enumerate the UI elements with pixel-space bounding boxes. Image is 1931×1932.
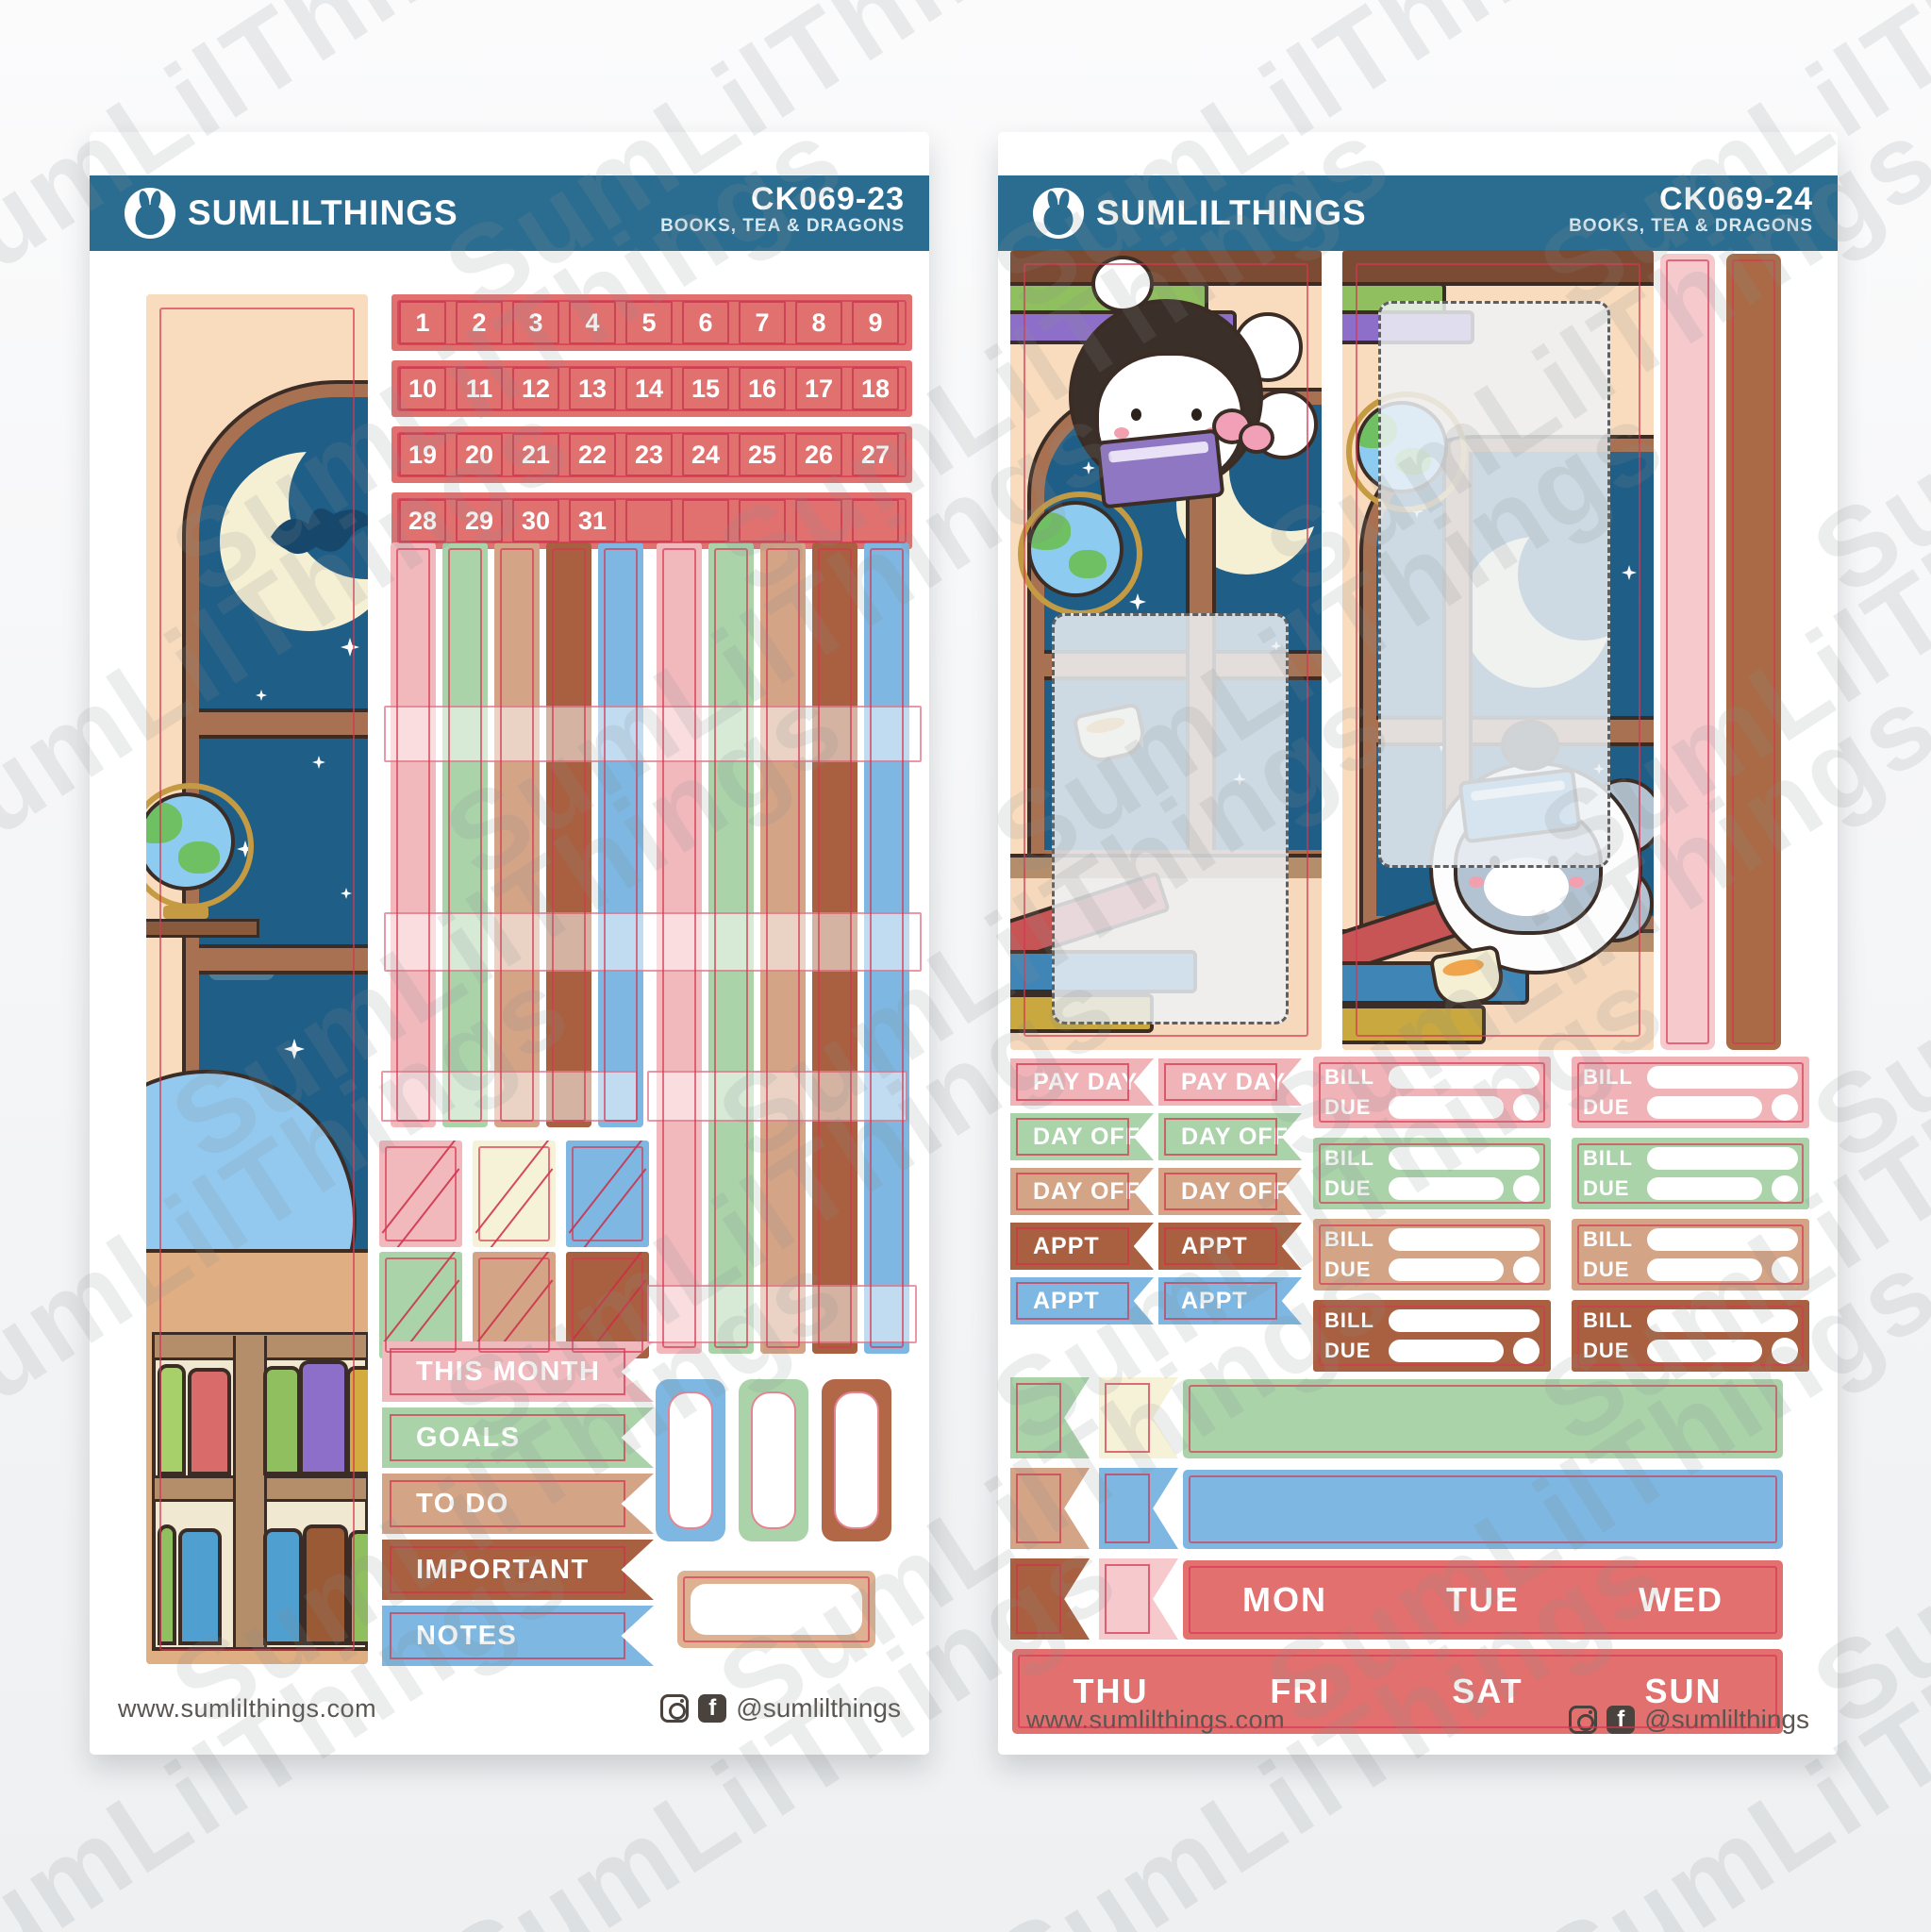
- bill-label: BILL: [1583, 1308, 1638, 1333]
- dragon-silhouette-icon: [258, 491, 368, 567]
- translucent-overlay-strip: [381, 1071, 638, 1122]
- banner-label: IMPORTANT: [416, 1555, 590, 1585]
- globe-shelf: [146, 919, 259, 938]
- character-eye: [1191, 408, 1202, 421]
- checkbox-circle: [1513, 1338, 1540, 1364]
- character-blush: [1114, 427, 1129, 439]
- star-icon: [341, 888, 352, 899]
- book-spine: [178, 1528, 222, 1645]
- star-icon: [1082, 461, 1095, 475]
- flag-label: APPT: [1033, 1233, 1100, 1259]
- vertical-box-rust: [822, 1379, 891, 1541]
- bill-write-in: [1389, 1309, 1540, 1332]
- date-strip-row-1: 1 2 3 4 5 6 7 8 9: [391, 294, 912, 351]
- checkbox-circle: [1513, 1175, 1540, 1202]
- date-sticker: 31: [569, 499, 616, 542]
- stacked-book: [1342, 1005, 1486, 1044]
- due-write-in: [1389, 1340, 1504, 1362]
- date-sticker: 25: [739, 433, 786, 476]
- facebook-icon: [1606, 1706, 1635, 1734]
- flag-label: DAY OFF: [1181, 1124, 1289, 1150]
- translucent-overlay-strip: [384, 912, 922, 972]
- flag-day-off: DAY OFF: [1158, 1113, 1302, 1160]
- globe-continent: [1027, 512, 1071, 550]
- date-sticker: 12: [512, 367, 559, 410]
- pink-bow: [1239, 422, 1274, 454]
- bookshelf: [152, 1332, 368, 1651]
- weekday-label: MON: [1242, 1580, 1327, 1620]
- corner-sticker-cream: [473, 1141, 556, 1247]
- date-sticker: 18: [852, 367, 899, 410]
- brand-name: SUMLILTHINGS: [1096, 193, 1367, 233]
- globe-continent: [146, 802, 182, 843]
- label-box-tan: [677, 1571, 875, 1648]
- date-sticker: 21: [512, 433, 559, 476]
- book-spine: [346, 1366, 368, 1475]
- bill-label: BILL: [1583, 1227, 1638, 1252]
- bill-due-sticker-brown: BILL DUE: [1572, 1300, 1809, 1372]
- flag-label: DAY OFF: [1033, 1124, 1140, 1150]
- date-sticker: 17: [795, 367, 842, 410]
- due-label: DUE: [1324, 1339, 1379, 1363]
- date-sticker: 28: [399, 499, 446, 542]
- bill-label: BILL: [1583, 1146, 1638, 1171]
- star-icon: [1129, 593, 1146, 610]
- bill-due-sticker-brown: BILL DUE: [1313, 1300, 1551, 1372]
- window-scene-sticker: [146, 294, 368, 1664]
- sticker-sheet-left: SUMLILTHINGS CK069-23 BOOKS, TEA & DRAGO…: [90, 132, 929, 1755]
- purple-book: [1096, 428, 1225, 508]
- flag-label: DAY OFF: [1181, 1178, 1289, 1205]
- date-sticker: 9: [852, 301, 899, 344]
- website-text: www.sumlilthings.com: [1026, 1706, 1285, 1735]
- brand-name: SUMLILTHINGS: [188, 193, 458, 233]
- character-blush: [1569, 876, 1584, 888]
- website-text: www.sumlilthings.com: [118, 1694, 376, 1724]
- bill-write-in: [1389, 1066, 1540, 1089]
- bill-due-sticker-green: BILL DUE: [1313, 1138, 1551, 1209]
- vertical-box-green: [739, 1379, 808, 1541]
- date-strip-row-4: 28 29 30 31: [391, 492, 912, 549]
- sheet-footer: www.sumlilthings.com @sumlilthings: [118, 1687, 901, 1730]
- vertical-box-blue: [656, 1379, 725, 1541]
- due-label: DUE: [1583, 1095, 1638, 1120]
- flag-appt: APPT: [1010, 1277, 1154, 1324]
- blank-date-sticker: [852, 499, 899, 542]
- flag-day-off: DAY OFF: [1010, 1168, 1154, 1215]
- date-sticker: 7: [739, 301, 786, 344]
- banner-label: GOALS: [416, 1423, 521, 1453]
- collection-name: BOOKS, TEA & DRAGONS: [660, 217, 905, 236]
- globe-continent: [178, 841, 220, 874]
- date-sticker: 22: [569, 433, 616, 476]
- window-crossbar: [199, 944, 368, 974]
- book-spine: [188, 1368, 231, 1475]
- flag-day-off: DAY OFF: [1010, 1113, 1154, 1160]
- flag-label: APPT: [1181, 1288, 1248, 1314]
- date-sticker: 2: [456, 301, 503, 344]
- long-bar-blue: [1183, 1470, 1783, 1549]
- bill-label: BILL: [1324, 1065, 1379, 1090]
- globe-base: [163, 906, 208, 919]
- collection-name: BOOKS, TEA & DRAGONS: [1569, 217, 1813, 236]
- page-background: SUMLILTHINGS CK069-23 BOOKS, TEA & DRAGO…: [0, 0, 1931, 1932]
- book-spine: [348, 1530, 368, 1645]
- flag-appt: APPT: [1010, 1223, 1154, 1270]
- side-strip-brown: [1726, 254, 1781, 1050]
- bill-due-sticker-pink: BILL DUE: [1572, 1057, 1809, 1128]
- mini-flag-pink: [1099, 1558, 1178, 1640]
- star-icon: [227, 425, 242, 441]
- date-sticker: 6: [682, 301, 729, 344]
- book-spine: [158, 1364, 186, 1475]
- banner-label: NOTES: [416, 1621, 517, 1651]
- date-sticker: 5: [625, 301, 673, 344]
- translucent-overlay-strip: [384, 706, 922, 762]
- due-label: DUE: [1583, 1176, 1638, 1201]
- sheet-footer: www.sumlilthings.com @sumlilthings: [1026, 1698, 1809, 1741]
- due-write-in: [1389, 1177, 1504, 1200]
- flag-pay-day: PAY DAY: [1158, 1058, 1302, 1106]
- banner-to-do: TO DO: [382, 1474, 654, 1534]
- date-sticker: 3: [512, 301, 559, 344]
- checkbox-circle: [1772, 1338, 1798, 1364]
- bill-due-sticker-tan: BILL DUE: [1313, 1219, 1551, 1291]
- bill-write-in: [1647, 1309, 1798, 1332]
- book-spine: [303, 1524, 348, 1645]
- sheet-header-left: SUMLILTHINGS CK069-23 BOOKS, TEA & DRAGO…: [90, 175, 929, 251]
- sheet-code: CK069-24: [1569, 183, 1813, 217]
- banner-this-month: THIS MONTH: [382, 1341, 654, 1402]
- due-label: DUE: [1324, 1176, 1379, 1201]
- due-write-in: [1647, 1177, 1762, 1200]
- weekday-bar-mon-wed: MON TUE WED: [1183, 1560, 1783, 1640]
- banner-goals: GOALS: [382, 1407, 654, 1468]
- date-sticker: 13: [569, 367, 616, 410]
- instagram-icon: [660, 1694, 689, 1723]
- bill-label: BILL: [1324, 1308, 1379, 1333]
- sticker-sheet-right: SUMLILTHINGS CK069-24 BOOKS, TEA & DRAGO…: [998, 132, 1838, 1755]
- translucent-overlay-strip: [647, 1285, 917, 1343]
- mini-flag-cream: [1099, 1377, 1178, 1458]
- social-handle: @sumlilthings: [1644, 1705, 1809, 1735]
- bill-label: BILL: [1324, 1146, 1379, 1171]
- book-spine: [158, 1524, 176, 1645]
- date-sticker: 24: [682, 433, 729, 476]
- flag-label: PAY DAY: [1033, 1069, 1138, 1095]
- star-icon: [312, 756, 325, 769]
- shelf-plank: [1342, 250, 1654, 286]
- date-sticker: 10: [399, 367, 446, 410]
- shelf-divider: [233, 1336, 267, 1647]
- due-write-in: [1389, 1096, 1504, 1119]
- book-spine: [263, 1366, 301, 1475]
- tea: [1441, 957, 1485, 978]
- mini-flag-tan: [1010, 1468, 1090, 1549]
- weekday-label: TUE: [1446, 1580, 1520, 1620]
- hamster-friend: [1091, 256, 1154, 312]
- flag-appt: APPT: [1158, 1277, 1302, 1324]
- book-spine: [263, 1528, 303, 1645]
- checkbox-circle: [1772, 1257, 1798, 1283]
- flag-label: PAY DAY: [1181, 1069, 1286, 1095]
- flag-pay-day: PAY DAY: [1010, 1058, 1154, 1106]
- mini-flag-green: [1010, 1377, 1090, 1458]
- date-sticker: 11: [456, 367, 503, 410]
- date-sticker: 20: [456, 433, 503, 476]
- mini-flag-brown: [1010, 1558, 1090, 1640]
- globe-continent: [1069, 550, 1107, 578]
- globe: [1027, 501, 1124, 597]
- instagram-icon: [1569, 1706, 1597, 1734]
- checkbox-circle: [1772, 1175, 1798, 1202]
- date-strip-row-3: 19 20 21 22 23 24 25 26 27: [391, 426, 912, 483]
- corner-sticker-blue: [566, 1141, 649, 1247]
- blank-date-sticker: [625, 499, 673, 542]
- corner-sticker-pink: [379, 1141, 462, 1247]
- long-bar-green: [1183, 1379, 1783, 1458]
- sheet-code: CK069-23: [660, 183, 905, 217]
- window-crossbar: [199, 708, 368, 739]
- bill-write-in: [1647, 1147, 1798, 1170]
- side-strip-pink: [1660, 254, 1715, 1050]
- blank-date-sticker: [739, 499, 786, 542]
- bunny-logo-icon: [124, 187, 176, 240]
- due-write-in: [1647, 1096, 1762, 1119]
- date-sticker: 15: [682, 367, 729, 410]
- weekday-label: WED: [1639, 1580, 1723, 1620]
- flag-day-off: DAY OFF: [1158, 1168, 1302, 1215]
- date-sticker: 8: [795, 301, 842, 344]
- bill-write-in: [1389, 1228, 1540, 1251]
- flag-label: DAY OFF: [1033, 1178, 1140, 1205]
- date-sticker: 27: [852, 433, 899, 476]
- date-sticker: 29: [456, 499, 503, 542]
- banner-label: THIS MONTH: [416, 1357, 600, 1387]
- bill-due-sticker-tan: BILL DUE: [1572, 1219, 1809, 1291]
- date-sticker: 14: [625, 367, 673, 410]
- scene-panel-left: [1010, 250, 1322, 1050]
- translucent-note-box: [1052, 613, 1289, 1024]
- washi-strip-pink: [391, 542, 436, 1127]
- date-sticker: 23: [625, 433, 673, 476]
- washi-strip-brown: [546, 542, 591, 1127]
- translucent-overlay-strip: [647, 1071, 907, 1122]
- blank-date-sticker: [795, 499, 842, 542]
- flag-label: APPT: [1181, 1233, 1248, 1259]
- date-sticker: 16: [739, 367, 786, 410]
- due-label: DUE: [1583, 1339, 1638, 1363]
- banner-notes: NOTES: [382, 1606, 654, 1666]
- blank-date-sticker: [682, 499, 729, 542]
- character-blush: [1469, 876, 1484, 888]
- bill-write-in: [1647, 1228, 1798, 1251]
- star-icon: [284, 1039, 305, 1059]
- social-handle: @sumlilthings: [736, 1693, 901, 1724]
- due-write-in: [1647, 1258, 1762, 1281]
- shelf-plank: [1010, 250, 1322, 286]
- book-spine: [299, 1360, 348, 1475]
- banner-important: IMPORTANT: [382, 1540, 654, 1600]
- scene-panel-right: [1342, 250, 1654, 1050]
- due-label: DUE: [1324, 1095, 1379, 1120]
- banner-label: TO DO: [416, 1489, 509, 1519]
- due-label: DUE: [1583, 1257, 1638, 1282]
- checkbox-circle: [1772, 1094, 1798, 1121]
- bunny-logo-icon: [1032, 187, 1085, 240]
- book-pages: [1108, 441, 1209, 463]
- date-sticker: 26: [795, 433, 842, 476]
- bill-label: BILL: [1583, 1065, 1638, 1090]
- date-sticker: 30: [512, 499, 559, 542]
- washi-strip-green: [442, 542, 488, 1127]
- date-sticker: 4: [569, 301, 616, 344]
- flag-label: APPT: [1033, 1288, 1100, 1314]
- date-sticker: 19: [399, 433, 446, 476]
- mini-flag-blue: [1099, 1468, 1178, 1549]
- sheet-header-right: SUMLILTHINGS CK069-24 BOOKS, TEA & DRAGO…: [998, 175, 1838, 251]
- date-strip-row-2: 10 11 12 13 14 15 16 17 18: [391, 360, 912, 417]
- date-sticker: 1: [399, 301, 446, 344]
- bill-write-in: [1647, 1066, 1798, 1089]
- checkbox-circle: [1513, 1257, 1540, 1283]
- due-write-in: [1647, 1340, 1762, 1362]
- translucent-note-box: [1378, 301, 1610, 868]
- due-write-in: [1389, 1258, 1504, 1281]
- flag-appt: APPT: [1158, 1223, 1302, 1270]
- due-label: DUE: [1324, 1257, 1379, 1282]
- washi-strip-blue: [598, 542, 643, 1127]
- bill-label: BILL: [1324, 1227, 1379, 1252]
- checkbox-circle: [1513, 1094, 1540, 1121]
- washi-strip-tan: [494, 542, 540, 1127]
- star-icon: [341, 638, 359, 657]
- bill-write-in: [1389, 1147, 1540, 1170]
- bill-due-sticker-pink: BILL DUE: [1313, 1057, 1551, 1128]
- facebook-icon: [698, 1694, 726, 1723]
- bill-due-sticker-green: BILL DUE: [1572, 1138, 1809, 1209]
- star-icon: [256, 690, 267, 701]
- character-eye: [1131, 408, 1141, 421]
